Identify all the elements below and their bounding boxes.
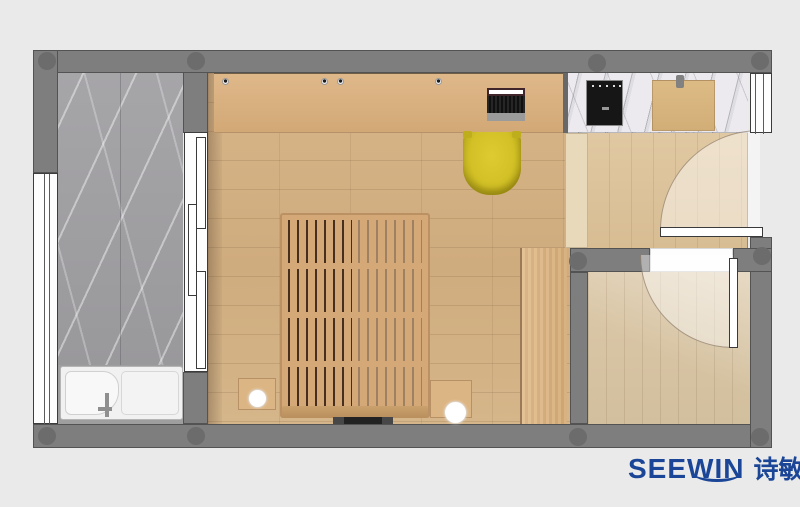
wall-bottom [33,424,772,448]
bedside-lamp-icon [249,390,266,407]
sliding-door-track [184,132,208,372]
laptop-keyboard [487,96,525,113]
cooktop [586,80,623,126]
window-mullion [763,74,764,134]
laptop-palmrest [487,113,525,121]
bathtub-deck [121,371,179,415]
wall-column-icon [569,428,587,446]
wall-column-icon [751,52,769,70]
tv-icon [333,417,393,424]
shoe-cabinet [565,133,588,248]
entry-door-leaf [660,227,763,237]
chopping-board [652,80,715,131]
wall-mid-vertical [570,272,588,424]
wall-column-icon [187,427,205,445]
cabinet-knob-icon [337,78,344,85]
bed-slats-right [358,220,422,406]
bedside-lamp-icon [445,402,466,423]
wall-bath-stub-bottom [183,372,208,424]
wall-bath-stub-top [183,72,208,133]
marble-tile-seam [120,73,121,365]
board-handle-icon [676,75,684,88]
bathroom-marble-floor [58,73,183,365]
window-left-mullion [44,174,45,425]
brand-logo-cjk: 诗敏 [753,456,800,484]
desk-chair [463,132,521,195]
cooktop-mark [602,107,609,110]
window-top-right [750,73,772,133]
wardrobe [520,248,567,424]
cabinet-knob-icon [222,78,229,85]
bathtub [60,366,183,420]
wall-column-icon [753,247,771,265]
faucet-icon [105,393,109,417]
wall-column-icon [751,428,769,446]
room-door-leaf [729,258,738,348]
faucet-spout-icon [98,407,112,411]
window-left-mullion [49,174,50,425]
wall-top [33,50,772,73]
sliding-door-panel [196,271,206,369]
wall-column-icon [588,54,606,72]
wall-column-icon [38,52,56,70]
cooktop-buttons-icon [592,85,594,87]
wall-column-icon [569,252,587,270]
cabinet-knob-icon [435,78,442,85]
cabinet-knob-icon [321,78,328,85]
window-left [33,173,58,424]
bed-slats-left [288,220,352,406]
window-mullion [755,74,756,134]
platform-bed [280,213,430,418]
sliding-door-panel [196,137,206,229]
wall-column-icon [38,427,56,445]
wall-column-icon [187,52,205,70]
laptop-screen [487,88,525,96]
floorplan-canvas: SEEWIN诗敏 [0,0,800,507]
